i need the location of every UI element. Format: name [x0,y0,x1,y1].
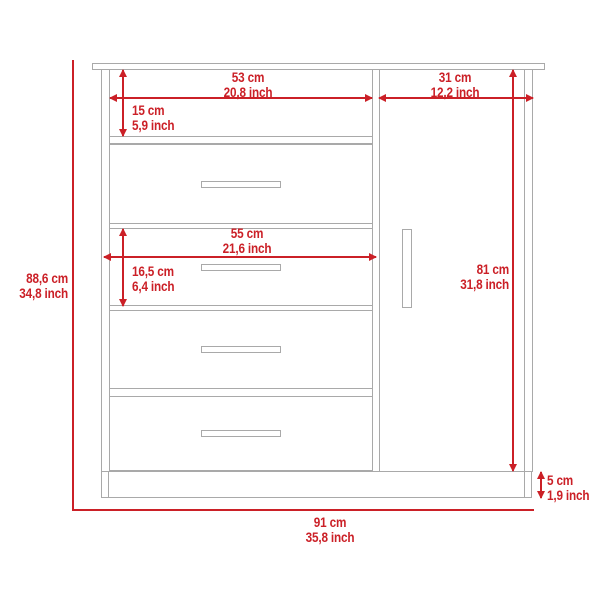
shelf-height-cm: 15 cm [132,103,174,118]
door-handle [402,229,412,308]
overall-height-extension-line [72,60,74,510]
label-top-right-width: 31 cm 12,2 inch [403,70,507,100]
dim-line-base-height [540,472,542,498]
label-top-left-width: 53 cm 20,8 inch [196,70,300,100]
dim-line-drawer-height [122,229,124,306]
overall-height-inch: 34,8 inch [4,286,68,301]
drawer-4-handle [201,430,281,437]
drawer-height-inch: 6,4 inch [132,279,174,294]
door-height-inch: 31,8 inch [439,277,509,292]
dim-line-shelf-height [122,70,124,136]
door-height-cm: 81 cm [439,262,509,277]
shelf-panel [109,136,373,144]
base-right-edge-line [524,471,525,498]
top-right-width-inch: 12,2 inch [403,85,507,100]
overall-width-cm: 91 cm [278,515,382,530]
top-left-width-cm: 53 cm [196,70,300,85]
label-overall-width: 91 cm 35,8 inch [278,515,382,545]
base-left-edge-line [108,471,109,498]
shelf-height-inch: 5,9 inch [132,118,174,133]
label-drawer-height: 16,5 cm 6,4 inch [132,264,174,294]
dim-line-drawer-width [104,256,376,258]
label-overall-height: 88,6 cm 34,8 inch [4,271,68,301]
top-left-width-inch: 20,8 inch [196,85,300,100]
drawer-2-handle [201,264,281,271]
dim-line-door-height [512,70,514,471]
base-height-cm: 5 cm [547,473,589,488]
drawer-width-cm: 55 cm [195,226,299,241]
label-door-height: 81 cm 31,8 inch [439,262,509,292]
drawer-width-inch: 21,6 inch [195,241,299,256]
drawer-3-handle [201,346,281,353]
base-height-inch: 1,9 inch [547,488,589,503]
drawer-1-handle [201,181,281,188]
cabinet-center-divider [372,69,380,472]
dimension-diagram: 53 cm 20,8 inch 31 cm 12,2 inch 15 cm 5,… [0,0,600,600]
label-drawer-width: 55 cm 21,6 inch [195,226,299,256]
overall-height-cm: 88,6 cm [4,271,68,286]
base-panel [101,471,532,498]
overall-width-inch: 35,8 inch [278,530,382,545]
drawer-height-cm: 16,5 cm [132,264,174,279]
cabinet-right-side-panel [524,69,533,472]
overall-width-extension-line [72,509,534,511]
label-base-height: 5 cm 1,9 inch [547,473,589,503]
label-shelf-height: 15 cm 5,9 inch [132,103,174,133]
top-right-width-cm: 31 cm [403,70,507,85]
